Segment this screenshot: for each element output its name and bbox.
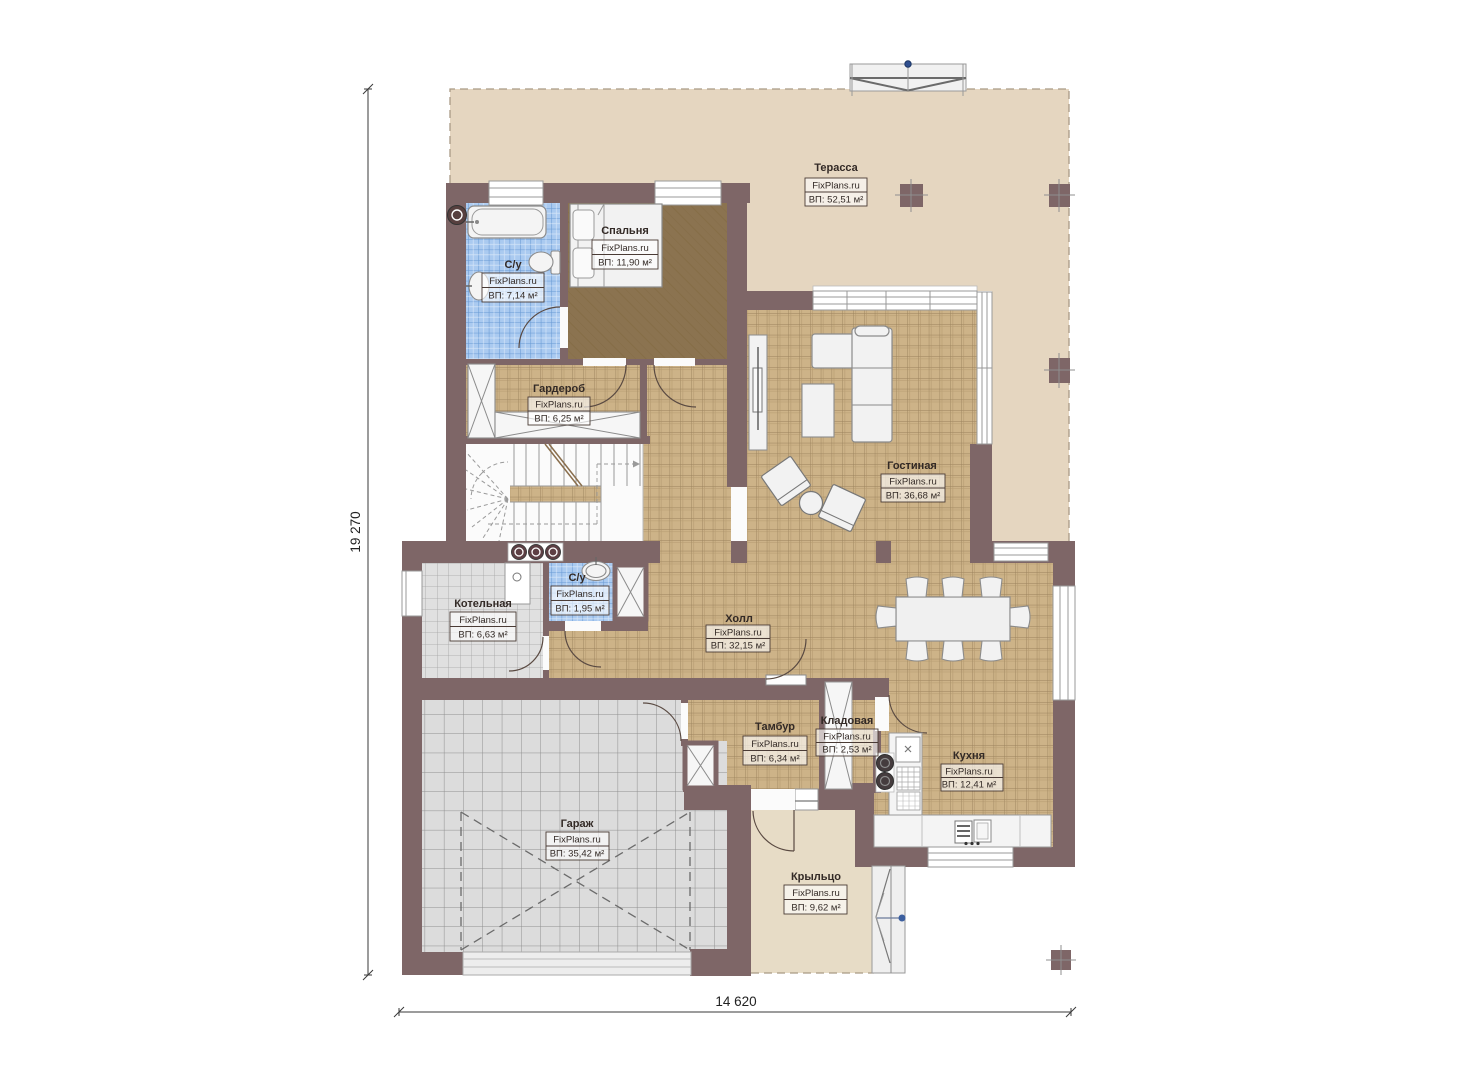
svg-text:Терасса: Терасса xyxy=(814,162,858,174)
svg-text:ВП: 9,62 м²: ВП: 9,62 м² xyxy=(791,903,840,914)
svg-text:FixPlans.ru: FixPlans.ru xyxy=(556,589,604,600)
svg-text:ВП: 32,15 м²: ВП: 32,15 м² xyxy=(711,641,766,652)
svg-text:Спальня: Спальня xyxy=(601,225,649,237)
svg-text:Крыльцо: Крыльцо xyxy=(791,871,841,883)
svg-text:FixPlans.ru: FixPlans.ru xyxy=(751,739,799,750)
svg-text:Кухня: Кухня xyxy=(953,750,985,762)
svg-text:ВП: 7,14 м²: ВП: 7,14 м² xyxy=(488,291,537,302)
svg-text:FixPlans.ru: FixPlans.ru xyxy=(792,888,840,899)
svg-text:ВП: 35,42 м²: ВП: 35,42 м² xyxy=(550,849,605,860)
svg-text:ВП: 36,68 м²: ВП: 36,68 м² xyxy=(886,491,941,502)
svg-text:Гараж: Гараж xyxy=(561,818,594,830)
svg-text:FixPlans.ru: FixPlans.ru xyxy=(553,835,601,846)
svg-text:ВП: 1,95 м²: ВП: 1,95 м² xyxy=(555,604,604,615)
svg-text:FixPlans.ru: FixPlans.ru xyxy=(601,243,649,254)
svg-text:ВП: 6,34 м²: ВП: 6,34 м² xyxy=(750,754,799,765)
svg-text:FixPlans.ru: FixPlans.ru xyxy=(889,477,937,488)
svg-text:С/у: С/у xyxy=(504,259,522,271)
svg-text:Холл: Холл xyxy=(725,613,753,625)
svg-text:С/у: С/у xyxy=(568,572,586,584)
svg-text:ВП: 11,90 м²: ВП: 11,90 м² xyxy=(598,258,652,269)
svg-text:ВП: 12,41 м²: ВП: 12,41 м² xyxy=(942,780,997,791)
svg-text:Гардероб: Гардероб xyxy=(533,383,585,395)
svg-text:Гостиная: Гостиная xyxy=(887,460,937,472)
svg-text:FixPlans.ru: FixPlans.ru xyxy=(945,767,993,778)
svg-text:ВП: 6,63 м²: ВП: 6,63 м² xyxy=(458,630,507,641)
svg-text:Тамбур: Тамбур xyxy=(755,721,795,733)
svg-text:Кладовая: Кладовая xyxy=(821,715,874,727)
svg-text:ВП: 52,51 м²: ВП: 52,51 м² xyxy=(809,195,864,206)
svg-text:FixPlans.ru: FixPlans.ru xyxy=(812,181,860,192)
svg-text:ВП: 2,53 м²: ВП: 2,53 м² xyxy=(822,745,871,756)
svg-text:19 270: 19 270 xyxy=(348,511,363,552)
svg-text:14 620: 14 620 xyxy=(715,994,756,1009)
svg-text:FixPlans.ru: FixPlans.ru xyxy=(459,615,507,626)
svg-text:Котельная: Котельная xyxy=(454,598,512,610)
svg-text:FixPlans.ru: FixPlans.ru xyxy=(823,732,871,743)
svg-text:ВП: 6,25 м²: ВП: 6,25 м² xyxy=(534,414,583,425)
svg-text:FixPlans.ru: FixPlans.ru xyxy=(535,400,583,411)
svg-text:FixPlans.ru: FixPlans.ru xyxy=(714,628,762,639)
svg-text:FixPlans.ru: FixPlans.ru xyxy=(489,276,537,287)
